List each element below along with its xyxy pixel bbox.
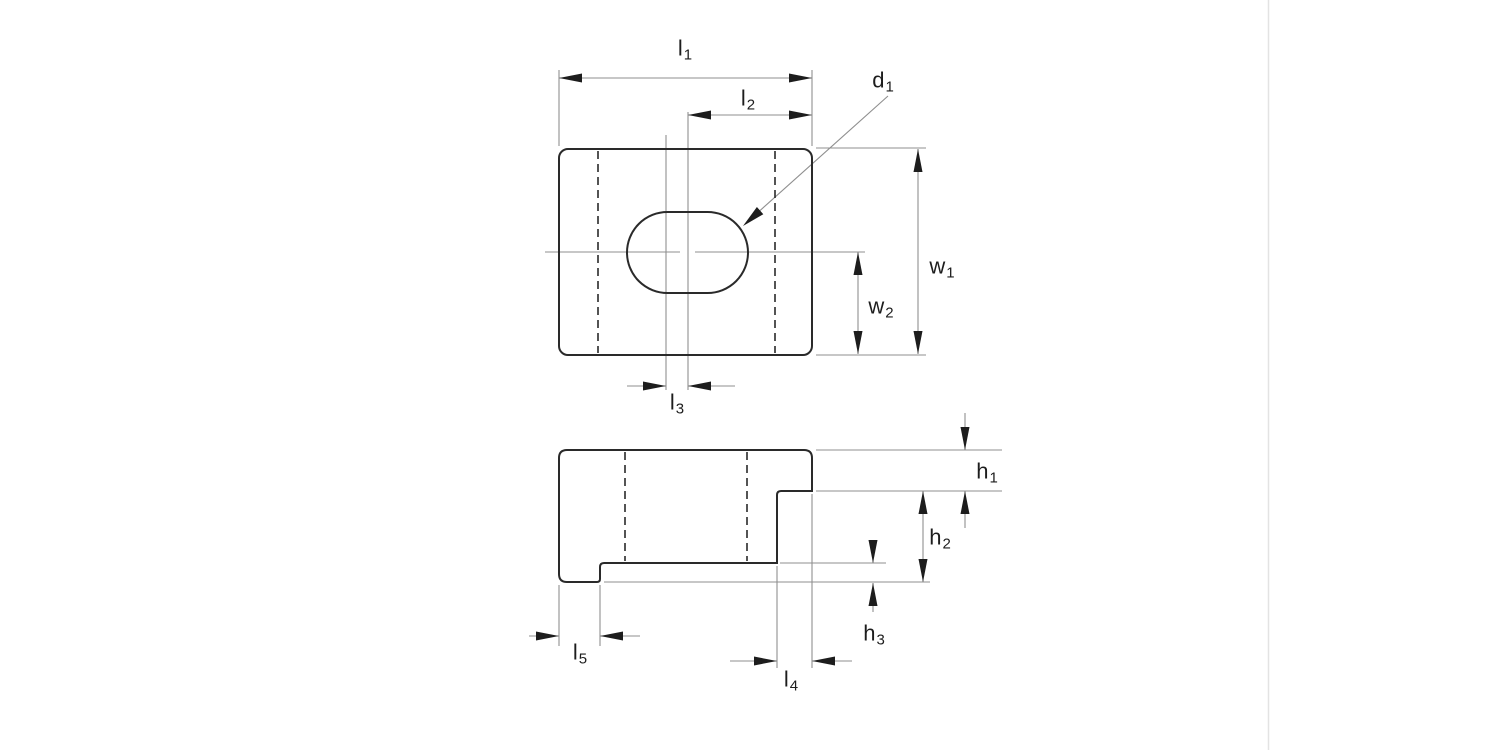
arrowhead bbox=[854, 252, 863, 275]
arrowhead bbox=[789, 111, 812, 120]
part-outline-side-view bbox=[559, 450, 812, 582]
dim-label-l4: l4 bbox=[784, 668, 798, 693]
arrowhead bbox=[688, 111, 711, 120]
dim-label-h2: h2 bbox=[929, 526, 951, 551]
arrowhead bbox=[754, 657, 777, 666]
arrowhead bbox=[869, 583, 878, 606]
dim-label-l1: l1 bbox=[678, 37, 692, 62]
dim-label-h1: h1 bbox=[976, 460, 998, 485]
side-view bbox=[559, 450, 812, 582]
dimension-arrowheads bbox=[536, 74, 970, 666]
arrowhead bbox=[559, 74, 582, 83]
dim-label-w1: w1 bbox=[929, 255, 954, 280]
arrowhead bbox=[919, 491, 928, 514]
arrowhead bbox=[600, 632, 623, 641]
arrowhead bbox=[789, 74, 812, 83]
arrowhead bbox=[914, 149, 923, 172]
arrowhead bbox=[961, 491, 970, 514]
dim-label-l5: l5 bbox=[573, 641, 587, 666]
dim-label-l2: l2 bbox=[741, 87, 755, 112]
dim-label-w2: w2 bbox=[868, 295, 893, 320]
dim-label-h3: h3 bbox=[863, 622, 885, 647]
arrowhead bbox=[643, 382, 666, 391]
arrowhead bbox=[914, 331, 923, 354]
arrowhead bbox=[961, 427, 970, 450]
arrowhead bbox=[869, 540, 878, 563]
dim-label-d1: d1 bbox=[872, 69, 894, 94]
arrowhead bbox=[919, 559, 928, 582]
arrowhead bbox=[688, 382, 711, 391]
drawing-canvas: l1 l2 l3 d1 w1 w2 h1 h2 h3 l4 l5 bbox=[0, 0, 1500, 750]
arrowhead bbox=[812, 657, 835, 666]
dim-label-l3: l3 bbox=[670, 391, 684, 416]
arrowhead bbox=[854, 331, 863, 354]
arrowhead bbox=[536, 632, 559, 641]
